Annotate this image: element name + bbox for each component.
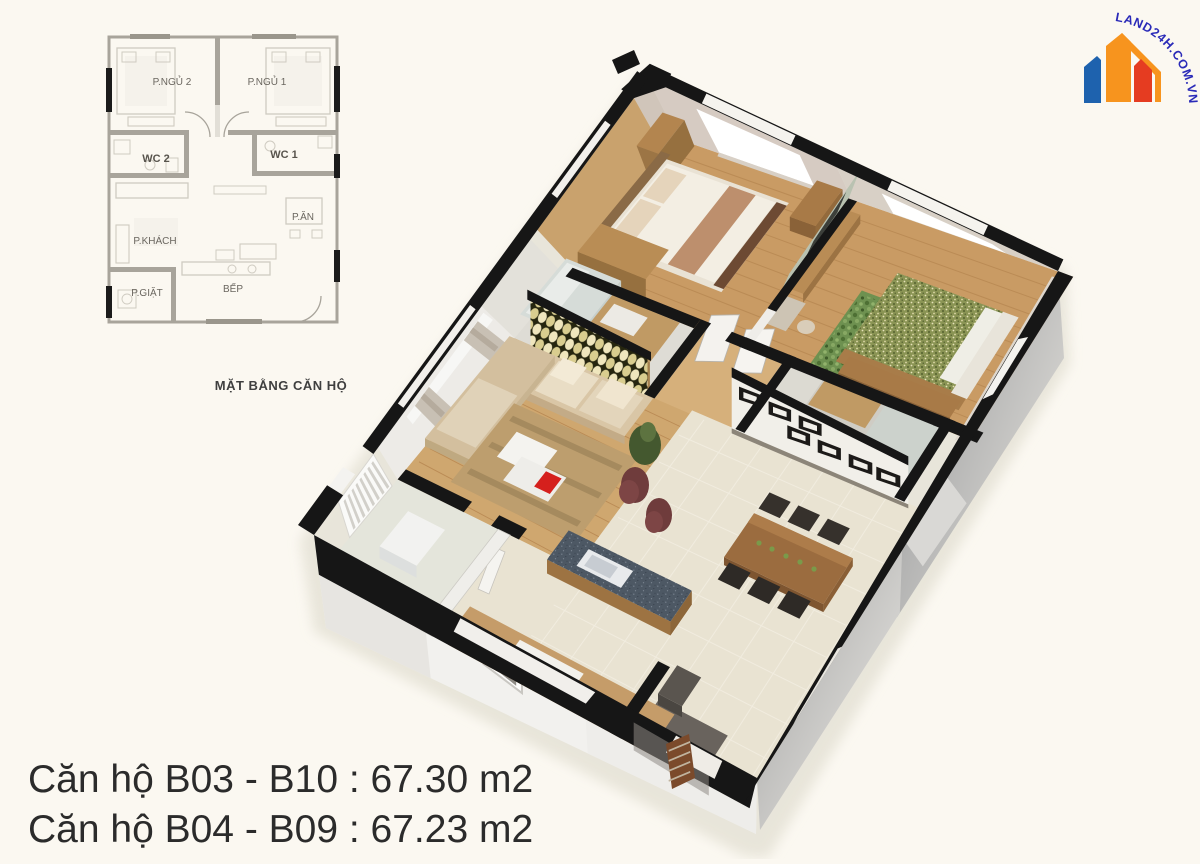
svg-text:WC 2: WC 2 — [142, 153, 170, 165]
svg-text:P.NGỦ 1: P.NGỦ 1 — [248, 75, 287, 88]
svg-text:P.GIẶT: P.GIẶT — [131, 286, 163, 299]
svg-text:P.NGỦ 2: P.NGỦ 2 — [153, 75, 192, 88]
svg-text:P.ĂN: P.ĂN — [292, 210, 314, 223]
svg-text:P.KHÁCH: P.KHÁCH — [133, 234, 176, 247]
svg-text:BẾP: BẾP — [223, 282, 243, 295]
svg-text:WC 1: WC 1 — [270, 149, 298, 161]
